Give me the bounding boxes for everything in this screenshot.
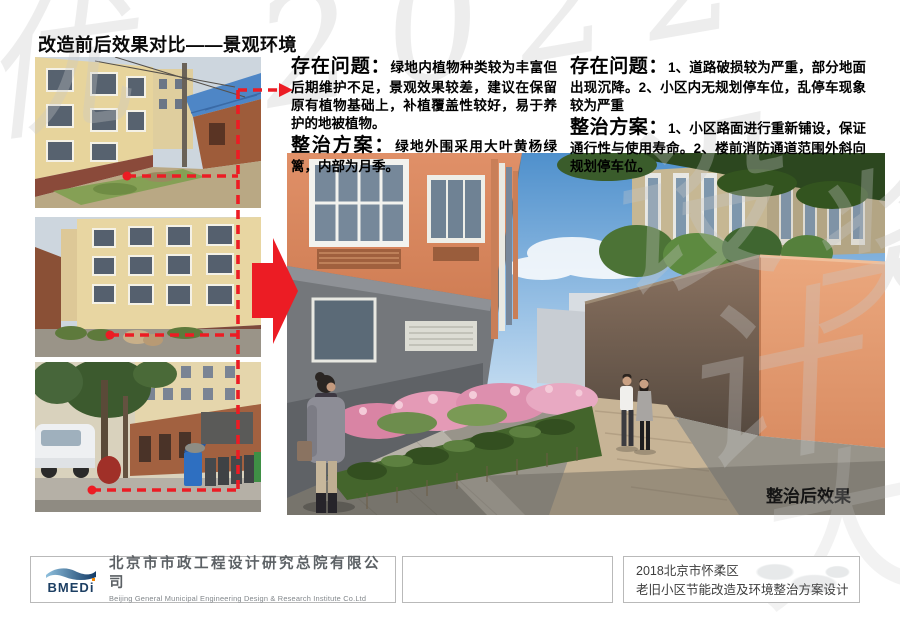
footer-company-box: BMEDi 北京市市政工程设计研究总院有限公司 Beijing General … <box>30 556 396 603</box>
page-title: 改造前后效果对比——景观环境 <box>38 31 297 57</box>
logo-wordmark: BMEDi <box>48 581 95 594</box>
panel-landscape-problems: 存在问题：绿地内植物种类较为丰富但后期维护不足，景观效果较差，建议在保留原有植物… <box>291 54 557 175</box>
after-effect-label: 整治后效果 <box>766 482 878 507</box>
problem-heading: 存在问题： <box>291 56 391 77</box>
before-photo-courtyard-image <box>35 57 261 208</box>
panel-road-parking-problems: 存在问题：1、道路破损较为严重，部分地面出现沉降。2、小区内无规划停车位，乱停车… <box>570 54 866 175</box>
after-rendering-image <box>287 153 885 515</box>
company-name-cn: 北京市市政工程设计研究总院有限公司 <box>109 555 395 594</box>
footer-empty-box <box>402 556 613 603</box>
panel-text: 整治方案：1、小区路面进行重新铺设，保证通行性与使用寿命。2、楼前消防通道范围外… <box>570 115 866 176</box>
company-names: 北京市市政工程设计研究总院有限公司 Beijing General Munici… <box>109 555 395 604</box>
after-rendering: 整治后效果 <box>287 153 885 515</box>
before-photo-street-bins-image <box>35 362 261 512</box>
footer-project-box: 2018北京市怀柔区 老旧小区节能改造及环境整治方案设计 <box>623 556 860 603</box>
before-photo-courtyard <box>35 57 261 208</box>
before-photo-facade-image <box>35 217 261 357</box>
company-name-en: Beijing General Municipal Engineering De… <box>109 594 395 604</box>
logo-orange-dot <box>92 578 95 581</box>
project-line-1: 2018北京市怀柔区 <box>636 562 859 581</box>
solution-heading: 整治方案： <box>570 117 668 138</box>
problem-heading: 存在问题： <box>570 56 668 77</box>
panel-text: 整治方案：绿地外围采用大叶黄杨绿篱，内部为月季。 <box>291 133 557 176</box>
before-photo-street-bins <box>35 362 261 512</box>
panel-text: 存在问题：绿地内植物种类较为丰富但后期维护不足，景观效果较差，建议在保留原有植物… <box>291 54 557 133</box>
before-photo-facade <box>35 217 261 357</box>
panel-text: 存在问题：1、道路破损较为严重，部分地面出现沉降。2、小区内无规划停车位，乱停车… <box>570 54 866 115</box>
slide-canvas: 优 2022 设 计 大 奖 改造前后效果对比——景观环境 <box>0 0 900 636</box>
company-logo: BMEDi <box>45 565 97 594</box>
solution-heading: 整治方案： <box>291 135 395 156</box>
project-line-2: 老旧小区节能改造及环境整治方案设计 <box>636 581 859 600</box>
logo-wave-icon <box>45 565 97 581</box>
